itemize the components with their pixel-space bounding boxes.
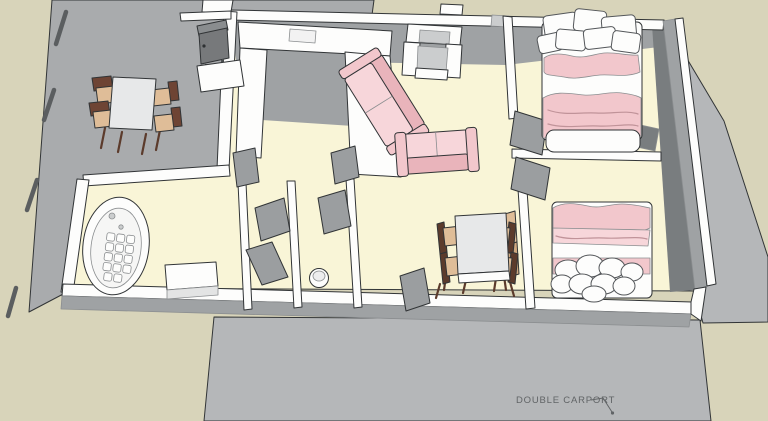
carport-label: DOUBLE CARPORT: [516, 395, 615, 406]
floorplan-3d-view: DOUBLE CARPORT: [0, 0, 768, 421]
carport-leader-dot: [611, 411, 614, 414]
door-leaf-hall-n: [331, 146, 359, 184]
toilet: [310, 269, 329, 288]
door-leaf-wc: [318, 190, 351, 234]
rear-wall-step: [440, 4, 463, 15]
double-bed-2: [551, 202, 652, 302]
dining-table-top: [455, 213, 509, 274]
counter-inner-face: [262, 48, 353, 126]
outdoor-table-top: [109, 77, 156, 130]
pillows: [536, 8, 641, 54]
kitchen-sink: [289, 29, 316, 43]
bath-faucet: [109, 213, 115, 219]
loveseat: [395, 127, 480, 177]
door-leaf-hall-nw: [233, 148, 259, 187]
deck-wall-stub: [202, 0, 233, 12]
carport-slab: [204, 317, 711, 421]
floorplan-scene: DOUBLE CARPORT: [0, 0, 768, 421]
bath-drain: [119, 225, 123, 229]
vanity: [165, 262, 218, 299]
double-bed-1: [536, 8, 642, 152]
door-leaf-front: [400, 268, 430, 311]
chair-seat: [154, 114, 174, 132]
deck-wall-rail: [180, 11, 231, 21]
deck-bench: [197, 60, 244, 92]
armchair: [402, 24, 462, 80]
bbq-knob: [202, 44, 205, 47]
